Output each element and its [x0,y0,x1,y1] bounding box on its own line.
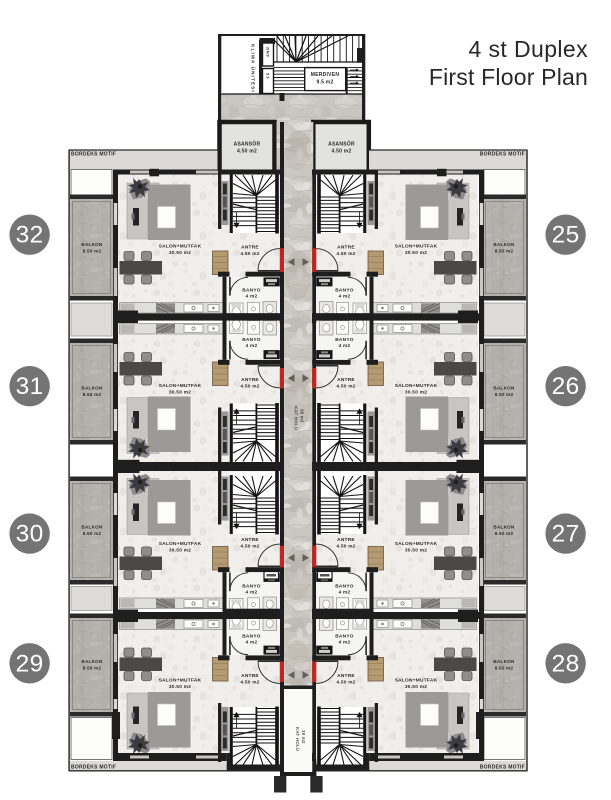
svg-text:4.50 m2: 4.50 m2 [240,383,259,389]
svg-text:4.50 m2: 4.50 m2 [336,543,355,549]
svg-text:8.50 m2: 8.50 m2 [495,531,514,536]
svg-text:4.50 m2: 4.50 m2 [336,251,355,257]
svg-text:4.50 m2: 4.50 m2 [240,680,259,686]
svg-text:31: 31 [16,373,44,400]
svg-text:SALON+MUTFAK: SALON+MUTFAK [159,383,202,389]
svg-text:BALKON: BALKON [493,242,515,247]
svg-text:4 m2: 4 m2 [246,343,258,349]
svg-text:MERDIVEN: MERDIVEN [311,72,340,78]
svg-text:KAT HOLÜ: KAT HOLÜ [295,727,300,751]
svg-text:30.50 m2: 30.50 m2 [169,250,191,256]
svg-text:SALON+MUTFAK: SALON+MUTFAK [395,541,438,547]
svg-text:30.50 m2: 30.50 m2 [169,390,191,396]
svg-text:SALON+MUTFAK: SALON+MUTFAK [395,677,438,683]
svg-text:30: 30 [16,521,44,548]
svg-text:4.50 m2: 4.50 m2 [240,251,259,257]
svg-text:BANYO: BANYO [335,583,354,589]
svg-text:BALKON: BALKON [81,386,103,391]
svg-text:4.50 m2: 4.50 m2 [240,543,259,549]
svg-text:BANYO: BANYO [335,287,354,293]
svg-text:BANYO: BANYO [242,287,261,293]
svg-text:8.50 m2: 8.50 m2 [83,531,102,536]
svg-text:4 m2: 4 m2 [339,640,351,646]
svg-text:28: 28 [552,650,580,677]
svg-text:8.50 m2: 8.50 m2 [495,392,514,397]
svg-text:30.50 m2: 30.50 m2 [169,547,191,553]
svg-text:BORDEKS MOTIF: BORDEKS MOTIF [71,152,116,158]
svg-text:First Floor Plan: First Floor Plan [429,64,588,90]
svg-text:BALKON: BALKON [81,242,103,247]
svg-text:ANTRE: ANTRE [337,673,355,679]
svg-text:SALON+MUTFAK: SALON+MUTFAK [159,677,202,683]
svg-text:8.50 m2: 8.50 m2 [83,392,102,397]
svg-text:8.50 m2: 8.50 m2 [83,249,102,254]
svg-text:26: 26 [552,373,580,400]
svg-text:25: 25 [552,222,580,249]
svg-text:BALKON: BALKON [493,659,515,664]
svg-text:30.50 m2: 30.50 m2 [405,250,427,256]
svg-text:ASANSÖR: ASANSÖR [328,141,355,148]
svg-text:SALON+MUTFAK: SALON+MUTFAK [395,383,438,389]
svg-text:4.50 m2: 4.50 m2 [336,383,355,389]
svg-text:38 m2: 38 m2 [301,730,306,744]
svg-text:30.50 m2: 30.50 m2 [169,684,191,690]
svg-text:5.9: 5.9 [266,73,270,79]
svg-text:SALON+MUTFAK: SALON+MUTFAK [159,243,202,249]
svg-text:BANYO: BANYO [242,634,261,640]
svg-text:BANYO: BANYO [242,337,261,343]
svg-text:BALKON: BALKON [81,659,103,664]
svg-text:27: 27 [552,521,580,548]
svg-text:4.50 m2: 4.50 m2 [331,149,351,155]
svg-text:ASANSÖR: ASANSÖR [234,141,261,148]
svg-text:30.50 m2: 30.50 m2 [405,684,427,690]
svg-text:4 st Duplex: 4 st Duplex [469,36,589,62]
svg-text:8.50 m2: 8.50 m2 [83,666,102,671]
svg-text:BORDEKS MOTIF: BORDEKS MOTIF [480,152,525,158]
svg-text:ANTRE: ANTRE [337,377,355,383]
svg-text:4 m2: 4 m2 [339,589,351,595]
svg-text:4 m2: 4 m2 [339,293,351,299]
svg-text:4 m2: 4 m2 [339,343,351,349]
svg-text:8.50 m2: 8.50 m2 [495,249,514,254]
svg-text:BALKON: BALKON [81,525,103,530]
svg-text:38 m2: 38 m2 [300,409,305,423]
svg-text:BORDEKS MOTIF: BORDEKS MOTIF [71,765,116,771]
svg-text:BALKON: BALKON [493,386,515,391]
svg-text:ANTRE: ANTRE [337,244,355,250]
svg-text:BALKON: BALKON [493,525,515,530]
svg-text:ANTRE: ANTRE [241,244,259,250]
svg-text:4 m2: 4 m2 [246,640,258,646]
svg-text:4 m2: 4 m2 [246,293,258,299]
svg-text:KLIMA ÜNITESI: KLIMA ÜNITESI [251,44,257,93]
svg-text:ANTRE: ANTRE [241,537,259,543]
svg-text:4.50 m2: 4.50 m2 [336,680,355,686]
svg-text:BANYO: BANYO [335,634,354,640]
svg-text:ANTRE: ANTRE [337,537,355,543]
svg-text:9.5 m2: 9.5 m2 [316,80,333,86]
svg-text:ANTRE: ANTRE [241,377,259,383]
svg-text:KAT HOLÜ: KAT HOLÜ [294,406,299,430]
svg-text:30.50 m2: 30.50 m2 [405,390,427,396]
svg-text:SALON+MUTFAK: SALON+MUTFAK [159,541,202,547]
svg-text:BANYO: BANYO [242,583,261,589]
svg-text:BORDEKS MOTIF: BORDEKS MOTIF [480,765,525,771]
svg-text:BANYO: BANYO [335,337,354,343]
svg-text:30.50 m2: 30.50 m2 [405,547,427,553]
svg-text:SALON+MUTFAK: SALON+MUTFAK [395,243,438,249]
svg-text:8.50 m2: 8.50 m2 [495,666,514,671]
svg-text:29: 29 [16,650,44,677]
svg-text:32: 32 [16,222,44,249]
svg-text:4.50 m2: 4.50 m2 [237,149,257,155]
svg-text:2/A/9: 2/A/9 [266,47,270,57]
svg-text:4 m2: 4 m2 [246,589,258,595]
svg-text:ANTRE: ANTRE [241,673,259,679]
